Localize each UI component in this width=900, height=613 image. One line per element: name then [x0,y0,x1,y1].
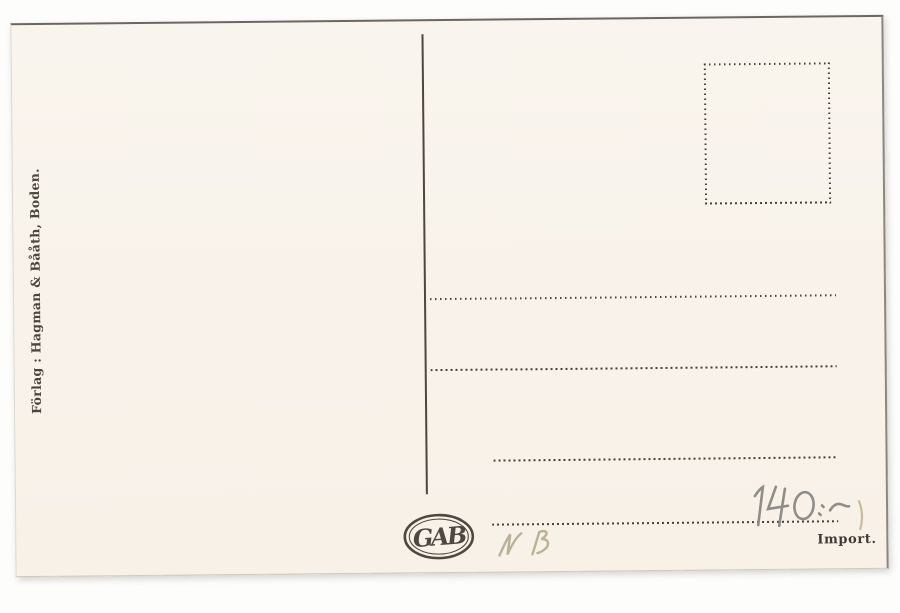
address-line-3 [494,456,838,461]
handwritten-price-strokes [755,486,849,526]
stray-pencil-mark [859,501,862,529]
handwritten-initials [494,528,562,563]
address-line-2 [431,365,837,371]
postcard: Förlag : Hagman & Bååth, Boden. GAB [10,15,888,577]
logo-monogram: GAB [412,520,468,553]
stamp-box-border-top [704,62,830,65]
center-divider-line [421,34,427,494]
address-line-1 [430,294,836,300]
import-label: Import. [817,532,876,548]
publisher-logo: GAB [402,513,475,561]
stamp-box-border-right [828,62,831,203]
handwritten-initials-strokes [499,531,548,556]
publisher-imprint: Förlag : Hagman & Bååth, Boden. [27,168,44,414]
stamp-box [704,62,831,204]
stamp-box-border-left [704,64,707,205]
handwritten-price [746,479,868,532]
scan-background: Förlag : Hagman & Bååth, Boden. GAB [0,0,900,613]
stamp-box-border-bottom [705,201,831,204]
